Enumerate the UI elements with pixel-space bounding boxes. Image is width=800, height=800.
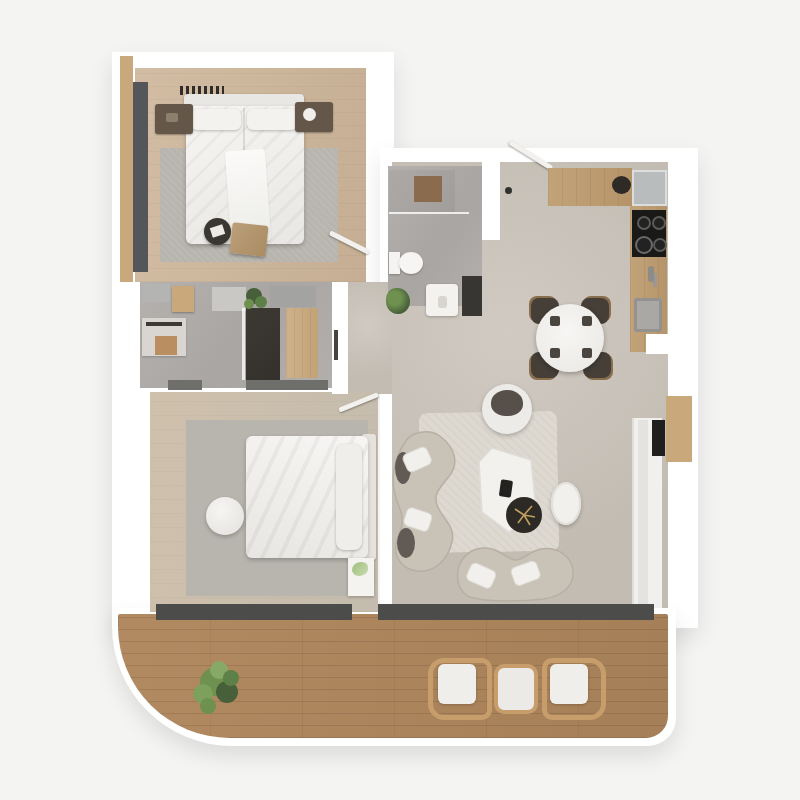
burner-4 bbox=[653, 238, 667, 252]
lounge-chair-right-cushion bbox=[550, 664, 588, 704]
entry-door-handle bbox=[505, 187, 512, 194]
master-pillow-left bbox=[191, 109, 241, 130]
living-rug bbox=[419, 411, 559, 553]
ensuite-wood-box bbox=[155, 336, 177, 355]
ensuite-wood-stool bbox=[172, 286, 194, 312]
ensuite-shower-glass bbox=[242, 308, 245, 380]
right-wall-wood-patch bbox=[666, 396, 692, 462]
lounge-side-table bbox=[494, 664, 538, 714]
fridge bbox=[632, 170, 667, 206]
place-setting-nw bbox=[550, 316, 560, 326]
right-window-glass bbox=[638, 420, 648, 606]
right-window-frame-dark bbox=[652, 420, 665, 456]
foot-bench bbox=[229, 222, 268, 257]
ensuite-hall-wall-top bbox=[332, 282, 348, 330]
ensuite-hall-wall-bottom bbox=[332, 360, 348, 394]
ensuite-wood-band bbox=[286, 308, 318, 378]
bedroom2-window-band bbox=[156, 604, 352, 620]
toilet-bowl bbox=[399, 252, 423, 274]
master-wardrobe bbox=[133, 82, 148, 272]
living-window-band bbox=[378, 604, 654, 620]
bedroom2-pillow bbox=[336, 444, 362, 550]
exterior-wood-trim bbox=[120, 56, 133, 282]
lounge-chair-left-cushion bbox=[438, 664, 476, 704]
bathroom-glass-panel bbox=[462, 276, 482, 316]
floor-plan-render bbox=[0, 0, 800, 800]
bedroom2-pouf bbox=[206, 497, 244, 535]
ensuite-shower-tray bbox=[212, 287, 246, 311]
ensuite-counter-block bbox=[270, 286, 316, 307]
bedroom2-closet-strip-left bbox=[168, 380, 202, 390]
ensuite-door-panel bbox=[334, 330, 338, 360]
burner-2 bbox=[652, 216, 666, 230]
bathroom-vanity-basin bbox=[438, 296, 447, 308]
armchair-cushion bbox=[491, 390, 523, 416]
bathroom-plant bbox=[386, 288, 410, 314]
dining-table bbox=[536, 304, 604, 372]
bathroom-right-wall bbox=[482, 148, 500, 240]
kitchen-faucet bbox=[648, 266, 654, 282]
nightstand-left-item bbox=[166, 113, 178, 122]
burner-3 bbox=[635, 236, 653, 254]
kitchen-cabinet-end bbox=[646, 334, 668, 354]
place-setting-ne bbox=[582, 316, 592, 326]
ensuite-shower-dark bbox=[246, 308, 280, 380]
kitchen-bowl bbox=[612, 176, 631, 194]
oval-pouf bbox=[551, 482, 581, 525]
bathroom-brown-mat bbox=[414, 176, 442, 202]
burner-1 bbox=[637, 216, 651, 230]
bathroom-shower-glass-line bbox=[389, 212, 469, 214]
place-setting-sw bbox=[550, 348, 560, 358]
master-pillow-right bbox=[247, 109, 297, 130]
nightstand-right-lamp bbox=[303, 108, 316, 121]
ensuite-mat bbox=[143, 284, 170, 302]
bedroom2-closet-strip-right bbox=[246, 380, 328, 390]
kitchen-sink bbox=[634, 298, 662, 332]
ensuite-towel-rail bbox=[146, 322, 182, 326]
place-setting-se bbox=[582, 348, 592, 358]
